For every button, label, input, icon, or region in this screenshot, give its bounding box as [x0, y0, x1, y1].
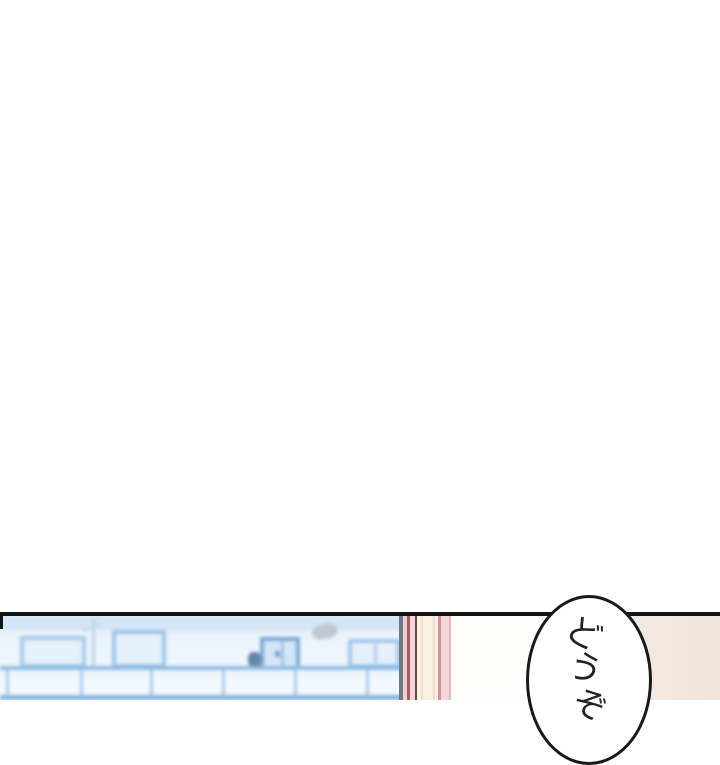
balcony-divider — [6, 670, 9, 697]
balcony-divider — [222, 670, 225, 697]
building-door-handle — [275, 651, 280, 657]
sky-haze — [0, 616, 402, 630]
apartment-building-photo — [0, 616, 402, 700]
balcony-divider — [294, 670, 297, 697]
blank-top-area — [0, 0, 720, 612]
building-window-divider — [374, 641, 377, 666]
distant-figure-blob — [248, 652, 261, 667]
panel-border-left-tick — [0, 616, 3, 629]
balcony-divider — [150, 670, 153, 697]
building-window — [112, 630, 166, 668]
window-frame-cream-line — [433, 616, 435, 700]
balcony-bottom-line — [0, 695, 402, 700]
building-blur-layer — [0, 616, 402, 700]
window-frame-cream-line — [421, 616, 423, 700]
building-ledge-line — [160, 630, 310, 632]
building-window — [20, 636, 86, 668]
balcony-divider — [80, 670, 83, 697]
balcony-divider — [366, 670, 369, 697]
page-root: { "scene": { "kind": "webtoon-comic-pane… — [0, 0, 720, 700]
building-door-frame-line — [281, 641, 284, 668]
